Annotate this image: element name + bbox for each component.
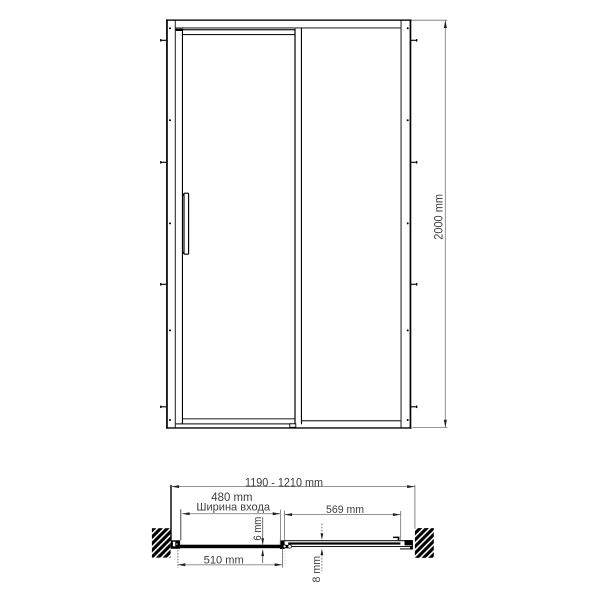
svg-text:Ширина входа: Ширина входа — [196, 501, 270, 513]
svg-text:8 mm: 8 mm — [311, 556, 323, 583]
svg-text:2000 mm: 2000 mm — [433, 194, 445, 240]
svg-text:6 mm: 6 mm — [252, 517, 264, 541]
svg-text:1190 - 1210 mm: 1190 - 1210 mm — [245, 476, 323, 490]
svg-text:510 mm: 510 mm — [204, 555, 244, 567]
svg-text:569 mm: 569 mm — [326, 504, 364, 516]
